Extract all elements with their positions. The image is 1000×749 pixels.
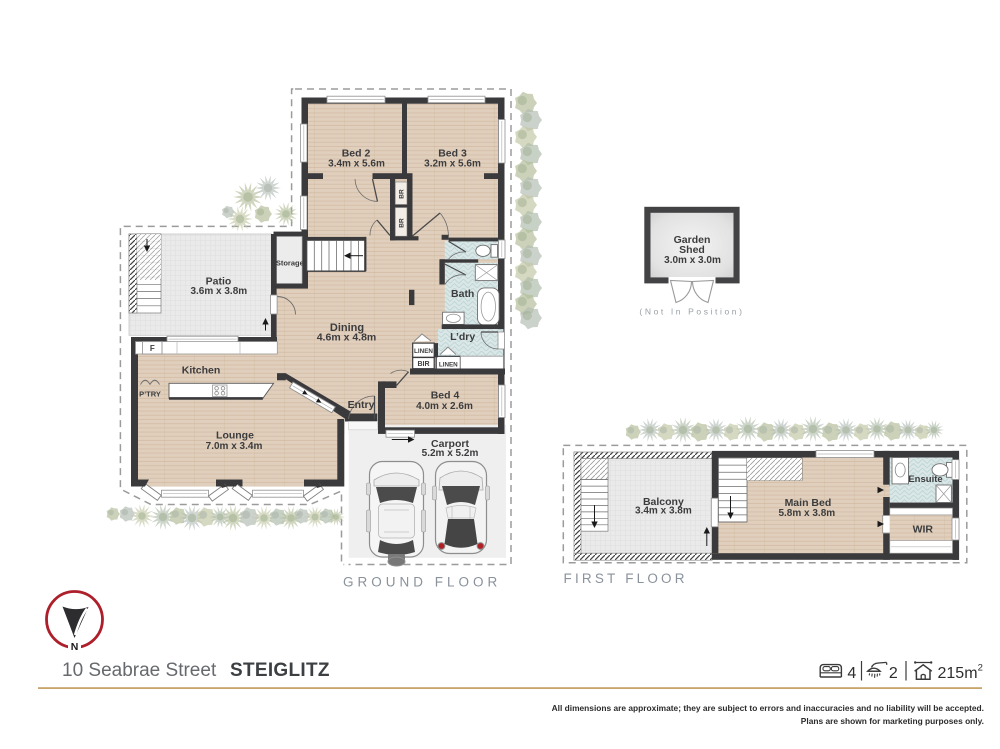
svg-text:Kitchen: Kitchen [182, 365, 221, 377]
svg-text:4.6m x 4.8m: 4.6m x 4.8m [317, 332, 377, 344]
svg-text:3.0m x 3.0m: 3.0m x 3.0m [664, 255, 721, 266]
svg-text:2: 2 [978, 663, 983, 674]
svg-text:BR: BR [399, 189, 406, 199]
svg-text:3.6m x 3.8m: 3.6m x 3.8m [190, 286, 247, 297]
svg-text:BR: BR [399, 218, 406, 228]
svg-text:Storage: Storage [276, 259, 304, 268]
svg-text:LINEN: LINEN [414, 348, 433, 355]
svg-text:215m: 215m [938, 665, 978, 682]
svg-text:5.8m x 3.8m: 5.8m x 3.8m [778, 508, 835, 519]
svg-text:BIR: BIR [417, 361, 429, 368]
svg-text:Entry: Entry [348, 399, 375, 411]
svg-text:Lounge: Lounge [216, 430, 254, 442]
svg-text:4.0m x 2.6m: 4.0m x 2.6m [416, 401, 473, 412]
svg-text:4: 4 [847, 665, 856, 682]
svg-text:All dimensions are approximate: All dimensions are approximate; they are… [552, 703, 984, 713]
svg-text:Bath: Bath [451, 288, 474, 300]
svg-text:STEIGLITZ: STEIGLITZ [230, 660, 330, 681]
svg-text:2: 2 [889, 665, 898, 682]
svg-text:3.2m x 5.6m: 3.2m x 5.6m [424, 159, 481, 170]
svg-text:GROUND FLOOR: GROUND FLOOR [343, 575, 501, 590]
svg-text:Plans are shown for marketing: Plans are shown for marketing purposes o… [801, 716, 984, 726]
svg-text:7.0m x 3.4m: 7.0m x 3.4m [206, 441, 263, 452]
svg-text:L’dry: L’dry [450, 331, 475, 343]
svg-text:F: F [150, 344, 155, 353]
svg-text:3.4m x 3.8m: 3.4m x 3.8m [635, 506, 692, 517]
svg-text:3.4m x 5.6m: 3.4m x 5.6m [328, 159, 385, 170]
svg-text:LINEN: LINEN [439, 361, 458, 368]
svg-text:N: N [71, 641, 79, 653]
svg-text:P’TRY: P’TRY [139, 390, 161, 399]
svg-text:FIRST FLOOR: FIRST FLOOR [564, 571, 688, 586]
svg-text:5.2m x 5.2m: 5.2m x 5.2m [422, 448, 479, 459]
svg-text:10 Seabrae Street: 10 Seabrae Street [62, 660, 217, 681]
svg-text:WIR: WIR [913, 523, 934, 535]
svg-text:(Not In Position): (Not In Position) [639, 307, 744, 317]
svg-text:Bed 4: Bed 4 [431, 390, 460, 402]
svg-text:Ensuite: Ensuite [908, 474, 942, 485]
